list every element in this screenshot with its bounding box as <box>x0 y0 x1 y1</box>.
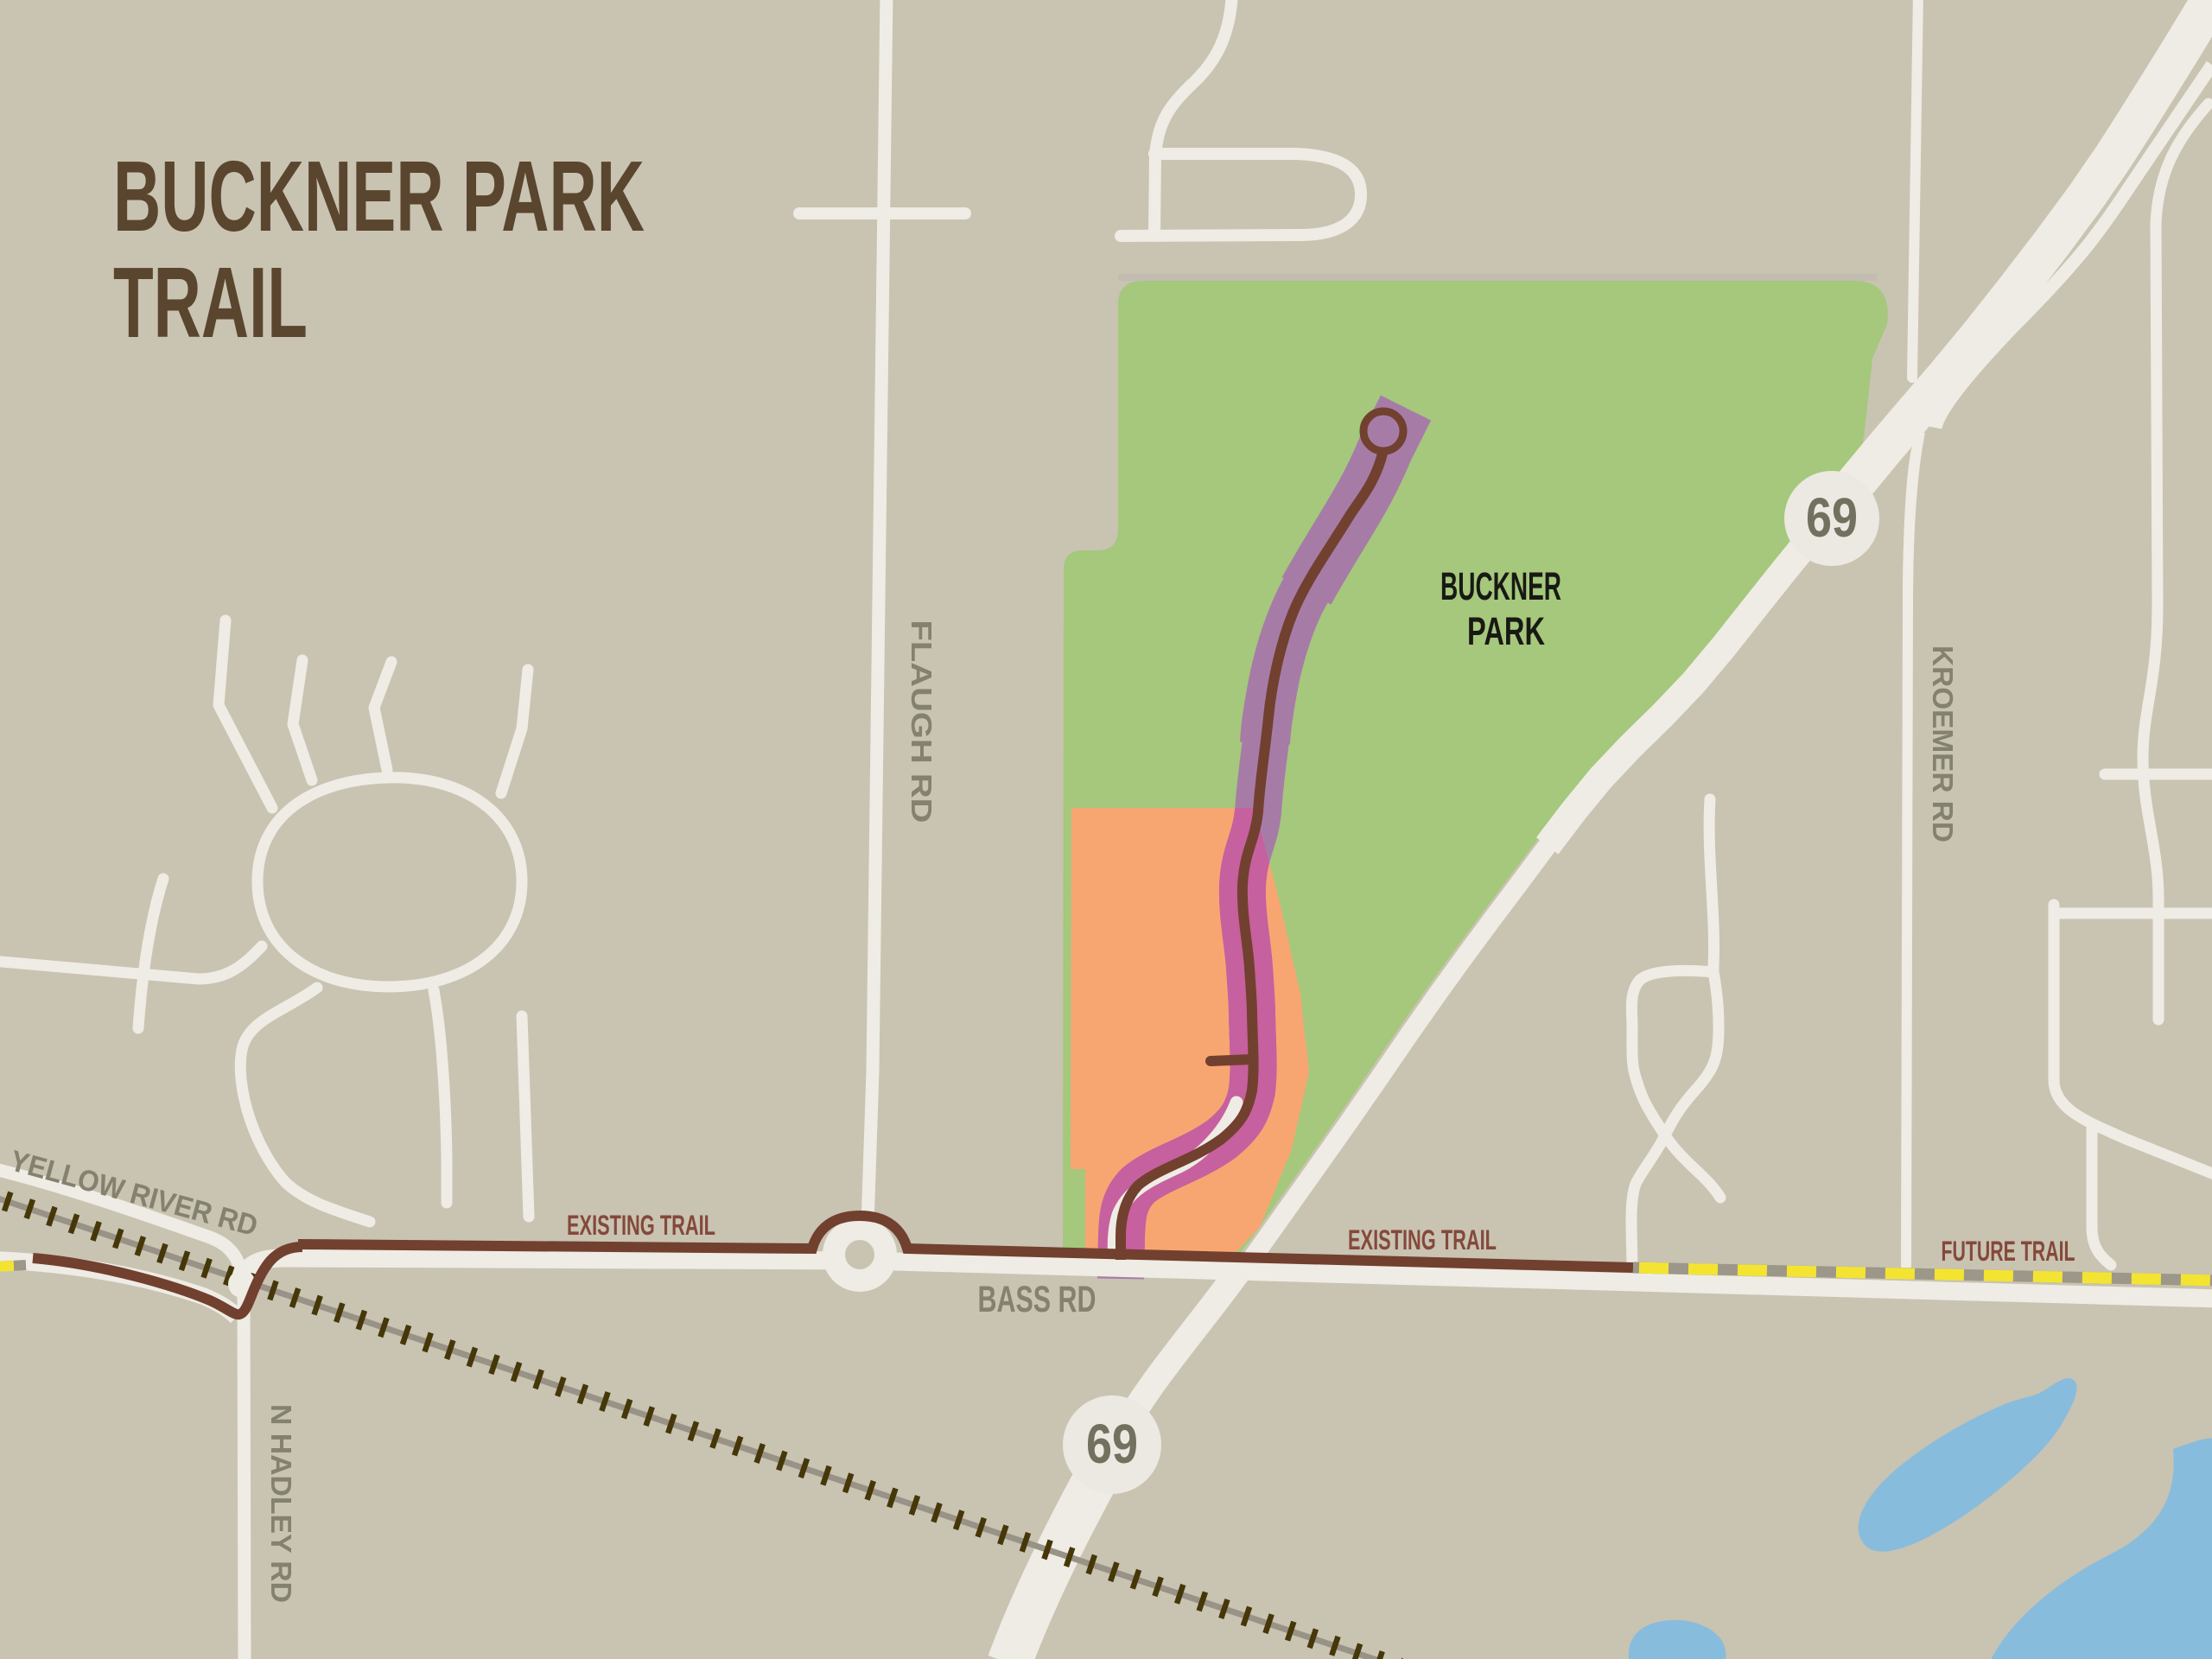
svg-text:TRAIL: TRAIL <box>113 246 308 359</box>
svg-text:KROEMER RD: KROEMER RD <box>1927 645 1959 842</box>
svg-text:FUTURE TRAIL: FUTURE TRAIL <box>1942 1236 2075 1267</box>
svg-text:EXISTING TRAIL: EXISTING TRAIL <box>567 1210 715 1241</box>
svg-text:69: 69 <box>1086 1413 1138 1475</box>
svg-text:69: 69 <box>1806 486 1858 549</box>
svg-text:BUCKNER PARK: BUCKNER PARK <box>113 140 645 252</box>
svg-text:PARK: PARK <box>1467 609 1545 653</box>
svg-text:FLAUGH RD: FLAUGH RD <box>906 620 938 823</box>
svg-text:EXISTING TRAIL: EXISTING TRAIL <box>1348 1224 1497 1255</box>
svg-text:BASS RD: BASS RD <box>978 1279 1096 1320</box>
svg-text:BUCKNER: BUCKNER <box>1440 564 1561 608</box>
svg-text:N HADLEY RD: N HADLEY RD <box>265 1404 297 1603</box>
